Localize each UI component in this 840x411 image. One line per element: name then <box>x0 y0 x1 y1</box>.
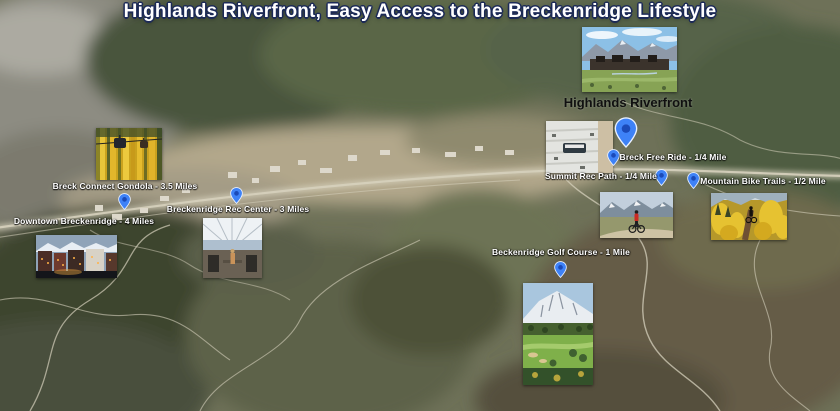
label-mountain-bike-trails: Mountain Bike Trails - 1/2 Mile <box>700 176 826 186</box>
gondola-autumn-aspens-photo <box>96 128 162 180</box>
free-ride-bus-aerial-photo <box>546 121 613 173</box>
rec-center-photo-art <box>203 218 262 278</box>
highlands-photo-art <box>582 27 677 92</box>
page-title: Highlands Riverfront, Easy Access to the… <box>124 1 717 23</box>
label-breckenridge-rec-center: Breckenridge Rec Center - 3 Miles <box>167 204 309 214</box>
map-pin-icon-golf <box>554 261 567 278</box>
listing-map-image[interactable]: Highlands Riverfront, Easy Access to the… <box>0 0 840 411</box>
golf-course-mountain-photo <box>523 283 593 385</box>
mountain-bike-trail-aspens-photo <box>711 193 787 240</box>
downtown-photo-art <box>36 235 117 278</box>
label-breckenridge-golf-course: Beckenridge Golf Course - 1 Mile <box>492 247 630 257</box>
label-breck-connect-gondola: Breck Connect Gondola - 3.5 Miles <box>53 181 198 191</box>
label-highlands-riverfront: Highlands Riverfront <box>564 95 693 110</box>
gondola-photo-art <box>96 128 162 180</box>
label-downtown-breckenridge: Downtown Breckenridge - 4 Miles <box>14 216 154 226</box>
rec-center-interior-photo <box>203 218 262 278</box>
map-pin-icon-free-ride <box>607 149 620 166</box>
golf-photo-art <box>523 283 593 385</box>
map-pin-icon-bike-trails <box>687 172 700 189</box>
cyclist-photo-art <box>600 192 673 238</box>
map-pin-icon-rec-center <box>230 187 243 204</box>
highlands-riverfront-homes-photo <box>582 27 677 92</box>
map-pin-icon-large <box>614 117 638 148</box>
mtb-photo-art <box>711 193 787 240</box>
bus-photo-art <box>546 121 613 173</box>
map-pin-icon-downtown <box>118 193 131 210</box>
label-summit-rec-path: Summit Rec Path - 1/4 Mile <box>545 171 657 181</box>
rec-path-cyclist-photo <box>600 192 673 238</box>
downtown-breckenridge-evening-photo <box>36 235 117 278</box>
label-breck-free-ride: Breck Free Ride - 1/4 Mile <box>620 152 727 162</box>
